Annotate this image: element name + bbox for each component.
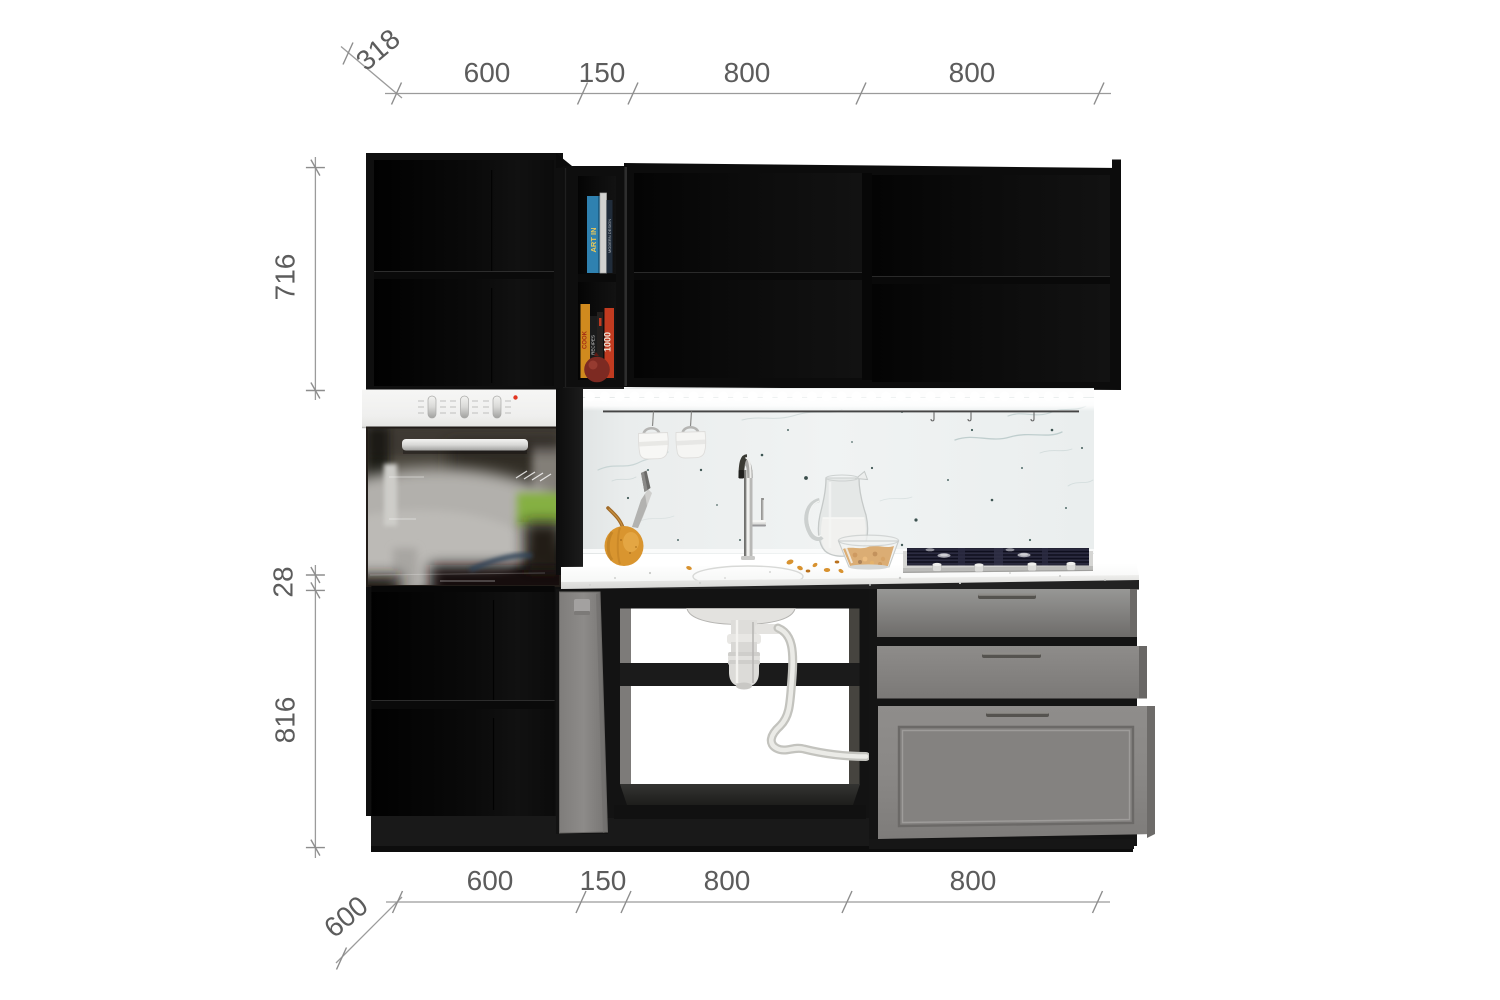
svg-text:800: 800 xyxy=(704,865,751,896)
svg-text:MODERN DESIGN: MODERN DESIGN xyxy=(607,219,612,253)
svg-text:COOK: COOK xyxy=(583,330,589,349)
svg-text:716: 716 xyxy=(270,254,301,301)
svg-text:150: 150 xyxy=(579,57,626,88)
svg-text:1000: 1000 xyxy=(603,332,613,352)
svg-text:816: 816 xyxy=(270,697,301,744)
svg-text:RECIPES: RECIPES xyxy=(591,335,596,355)
svg-text:28: 28 xyxy=(268,566,299,597)
svg-text:800: 800 xyxy=(949,57,996,88)
svg-text:600: 600 xyxy=(464,57,511,88)
svg-text:600: 600 xyxy=(467,865,514,896)
svg-text:800: 800 xyxy=(724,57,771,88)
svg-text:150: 150 xyxy=(580,865,627,896)
svg-text:ART IN: ART IN xyxy=(589,228,598,253)
svg-text:800: 800 xyxy=(950,865,997,896)
